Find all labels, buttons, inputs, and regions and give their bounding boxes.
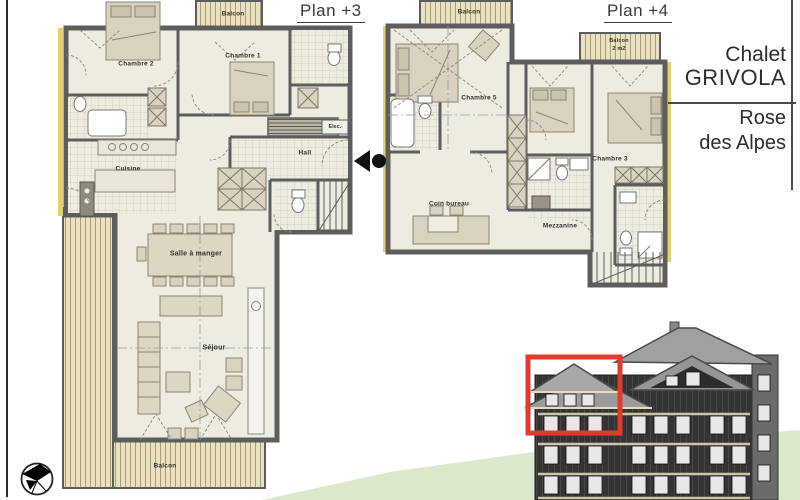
residence-name-line1: Rose (699, 106, 786, 131)
plan3-title: Plan +3 (297, 1, 365, 23)
sheet-left-border (6, 0, 8, 497)
title-block-residence: Rose des Alpes (699, 106, 786, 156)
chalet-name-line1: Chalet (685, 44, 786, 66)
title-block-chalet: Chalet GRIVOLA (685, 44, 786, 89)
building-elevation-drawing (500, 320, 795, 500)
room-label-elec: Elec. (329, 124, 342, 130)
room-label-salle-a-manger: Salle à manger (170, 251, 222, 258)
room-label-balcon-small-line1: Balcon (609, 38, 629, 44)
room-label-balcon-top-p4: Balcon (458, 9, 481, 16)
room-label-balcon-bottom-p3: Balcon (154, 463, 177, 470)
room-label-mezzanine: Mezzanine (543, 223, 577, 230)
room-label-hall: Hall (299, 150, 312, 157)
room-label-balcon-small-line2: 2 m2 (612, 46, 625, 52)
room-label-chambre2: Chambre 2 (118, 61, 153, 68)
floor-plan-4-drawing (380, 0, 680, 300)
room-label-cuisine: Cuisine (116, 166, 141, 173)
room-label-chambre1: Chambre 1 (225, 53, 260, 60)
title-block-right-border (791, 0, 793, 190)
chalet-name-line2: GRIVOLA (685, 66, 786, 89)
plan-sheet: Plan +3 Plan +4 Chalet GRIVOLA Rose des … (0, 0, 800, 500)
plan4-title: Plan +4 (604, 1, 672, 23)
room-label-chambre5: Chambre 5 (461, 95, 496, 102)
north-arrow-icon (18, 460, 58, 500)
room-label-chambre3: Chambre 3 (592, 156, 627, 163)
residence-name-line2: des Alpes (699, 131, 786, 156)
room-label-sejour: Séjour (203, 345, 226, 352)
section-cut-marker-icon (350, 146, 388, 176)
room-label-balcon-top-p3: Balcon (222, 11, 245, 18)
room-label-coin-bureau: Coin bureau (429, 201, 469, 208)
title-block-separator (668, 102, 796, 104)
